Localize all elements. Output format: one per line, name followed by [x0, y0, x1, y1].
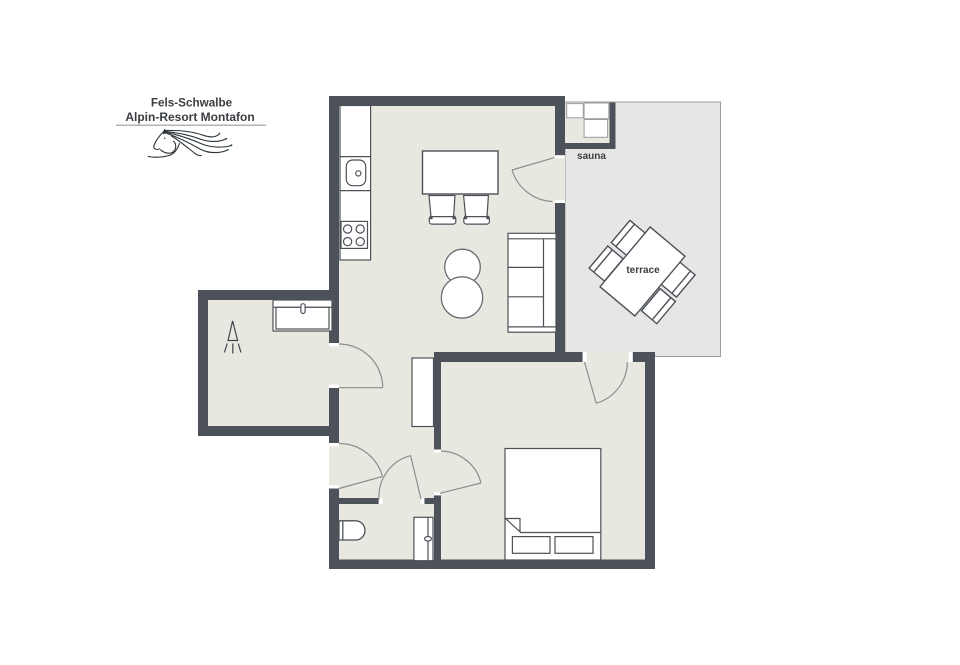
svg-text:terrace: terrace: [626, 265, 660, 276]
svg-text:Alpin-Resort Montafon: Alpin-Resort Montafon: [125, 110, 254, 124]
svg-text:sauna: sauna: [577, 151, 606, 162]
svg-text:Fels-Schwalbe: Fels-Schwalbe: [151, 97, 233, 110]
